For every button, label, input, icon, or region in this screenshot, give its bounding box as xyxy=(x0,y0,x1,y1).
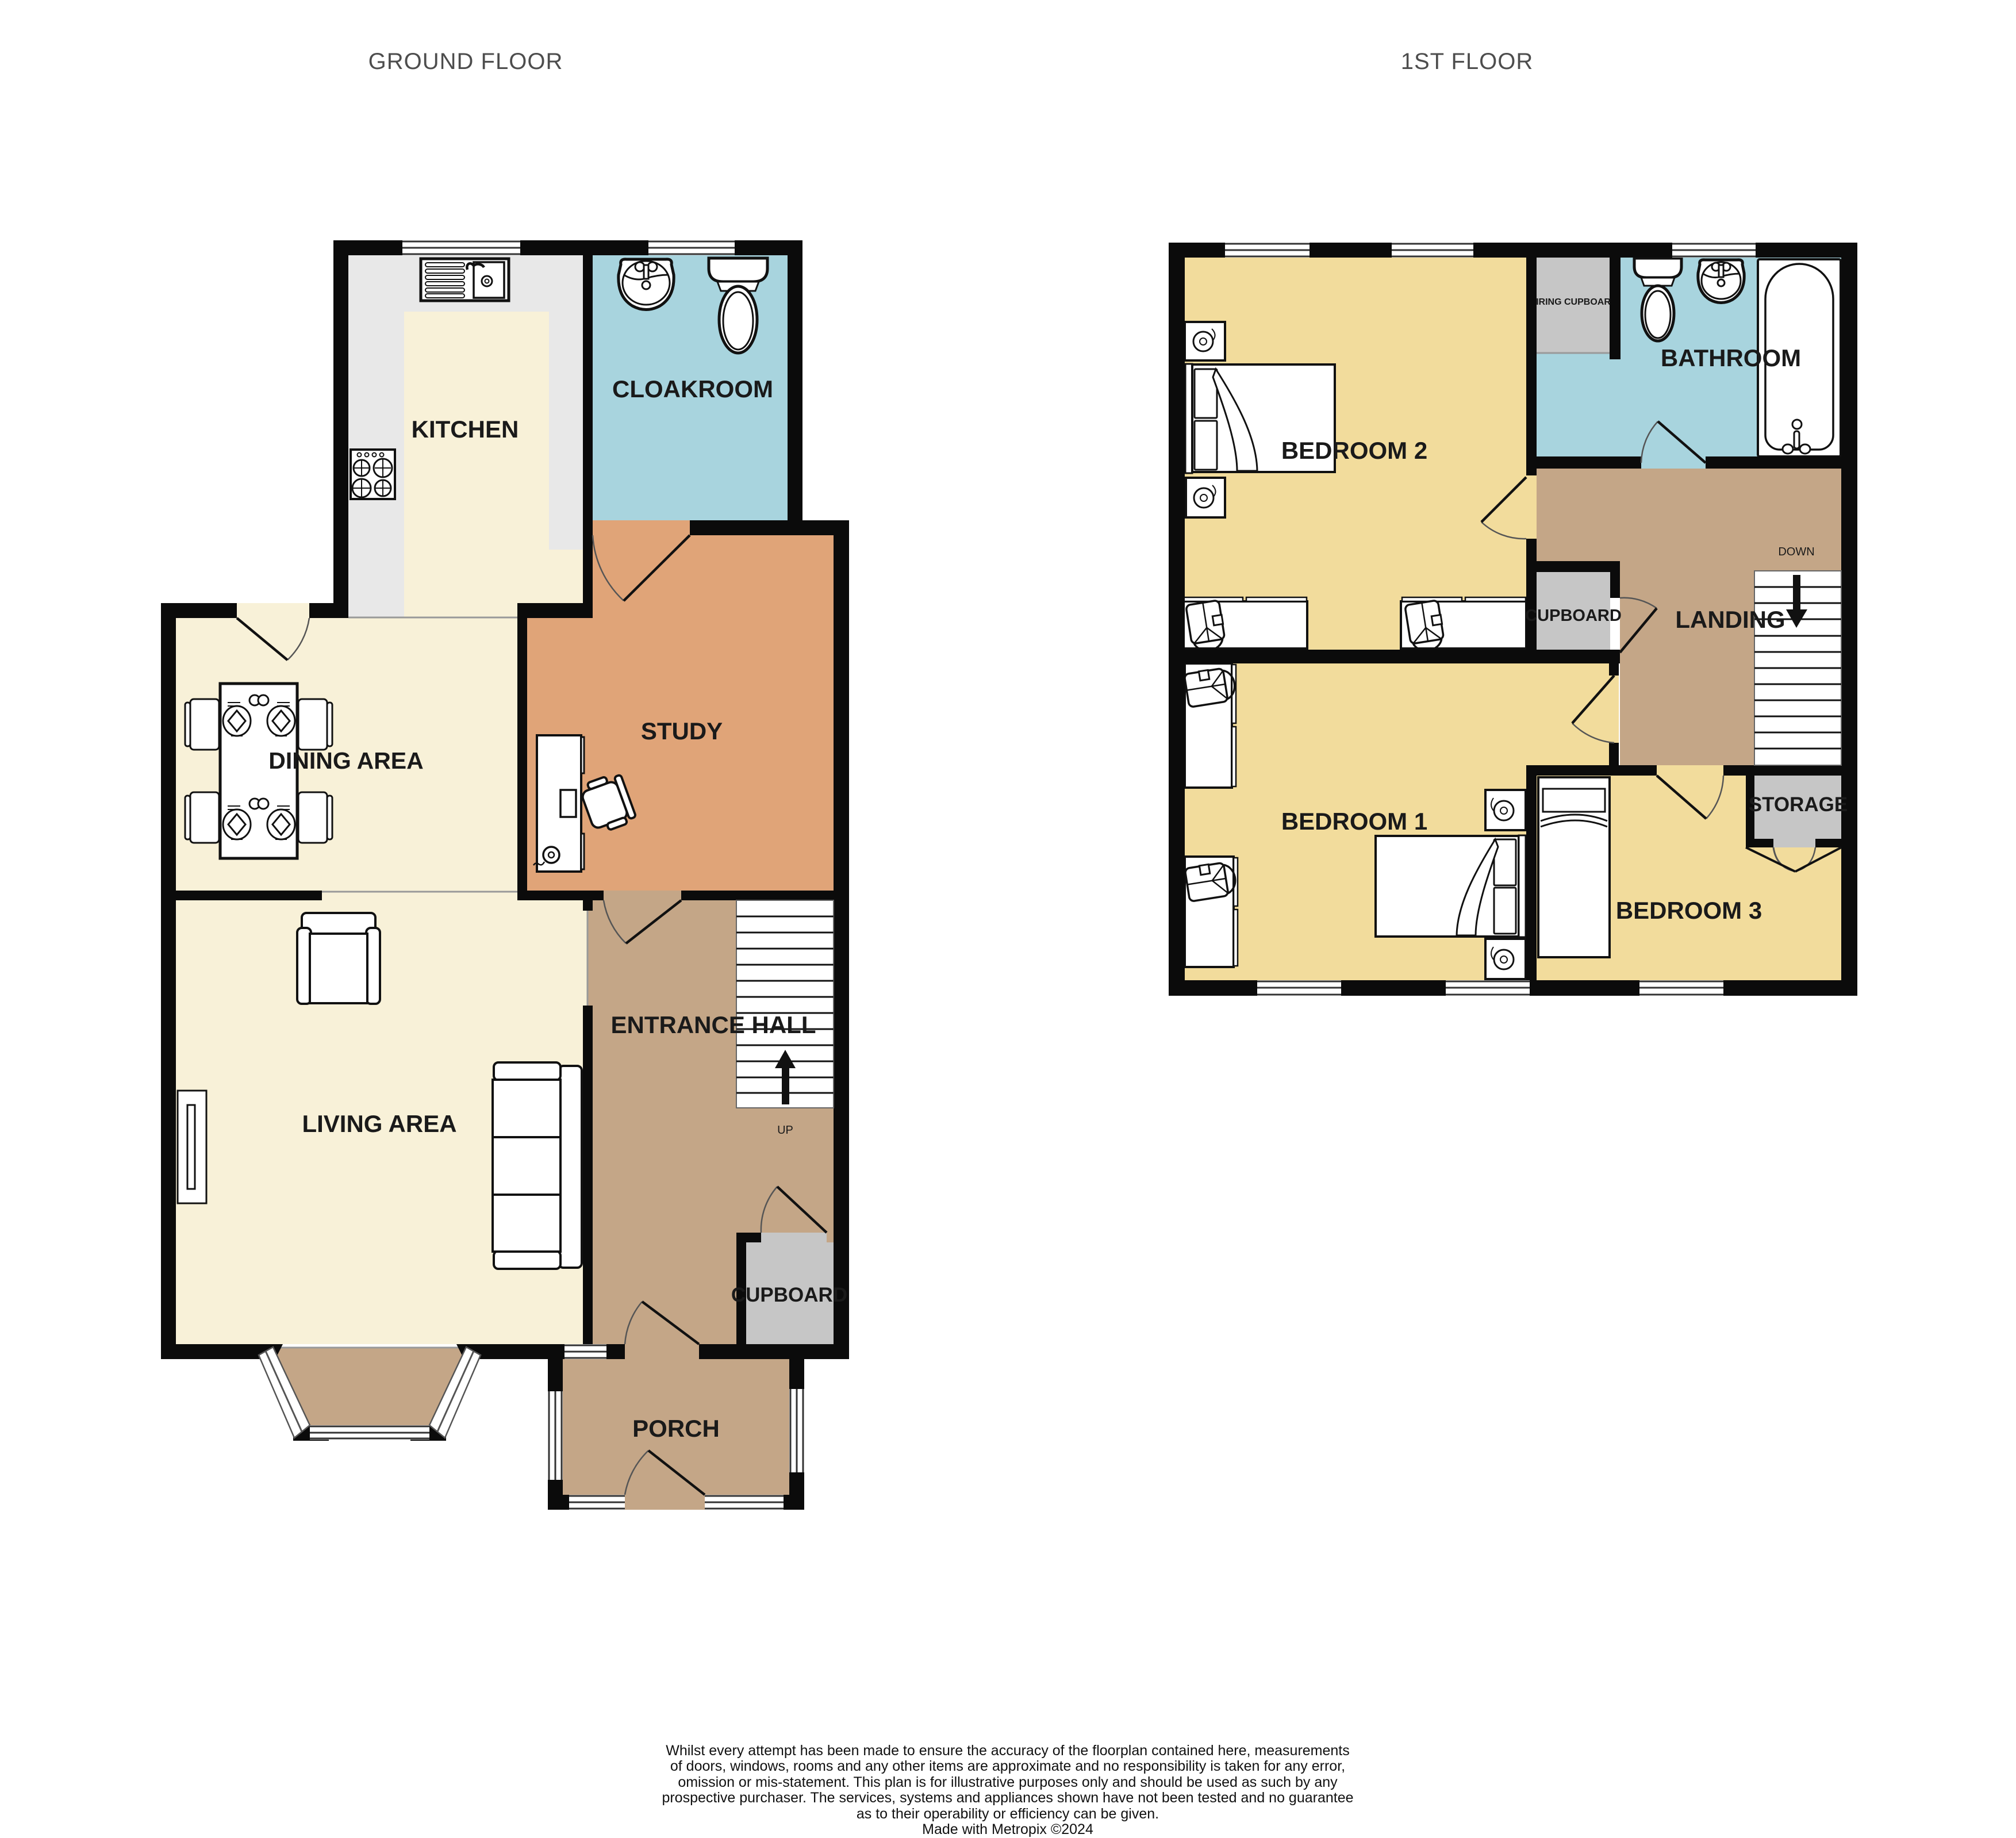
svg-text:STORAGE: STORAGE xyxy=(1749,793,1848,816)
svg-text:CUPBOARD: CUPBOARD xyxy=(731,1284,847,1306)
svg-text:CUPBOARD: CUPBOARD xyxy=(1525,607,1622,625)
svg-text:of doors, windows, rooms and a: of doors, windows, rooms and any other i… xyxy=(670,1758,1345,1774)
svg-text:Whilst every attempt has been: Whilst every attempt has been made to en… xyxy=(666,1743,1350,1759)
svg-text:BEDROOM 1: BEDROOM 1 xyxy=(1281,808,1427,835)
svg-text:Made with Metropix ©2024: Made with Metropix ©2024 xyxy=(922,1821,1093,1837)
svg-text:AIRING CUPBOARD: AIRING CUPBOARD xyxy=(1530,297,1618,307)
svg-text:BATHROOM: BATHROOM xyxy=(1661,344,1801,371)
svg-text:BEDROOM 3: BEDROOM 3 xyxy=(1616,897,1762,924)
svg-text:LANDING: LANDING xyxy=(1675,606,1785,633)
svg-text:LIVING AREA: LIVING AREA xyxy=(302,1110,456,1137)
svg-text:UP: UP xyxy=(777,1124,793,1137)
svg-text:DINING AREA: DINING AREA xyxy=(268,747,424,774)
svg-text:STUDY: STUDY xyxy=(641,717,723,745)
svg-text:PORCH: PORCH xyxy=(632,1415,720,1442)
svg-text:omission or mis-statement. Thi: omission or mis-statement. This plan is … xyxy=(678,1774,1338,1790)
svg-text:prospective purchaser. The ser: prospective purchaser. The services, sys… xyxy=(662,1790,1353,1806)
svg-text:ENTRANCE HALL: ENTRANCE HALL xyxy=(611,1011,816,1038)
svg-text:GROUND FLOOR: GROUND FLOOR xyxy=(368,49,563,74)
svg-text:CLOAKROOM: CLOAKROOM xyxy=(612,375,773,402)
svg-text:as to their operability or eff: as to their operability or efficiency ca… xyxy=(857,1806,1159,1822)
svg-text:BEDROOM 2: BEDROOM 2 xyxy=(1281,437,1427,464)
svg-text:DOWN: DOWN xyxy=(1778,546,1814,558)
svg-text:1ST FLOOR: 1ST FLOOR xyxy=(1401,49,1534,74)
svg-text:KITCHEN: KITCHEN xyxy=(412,416,519,443)
